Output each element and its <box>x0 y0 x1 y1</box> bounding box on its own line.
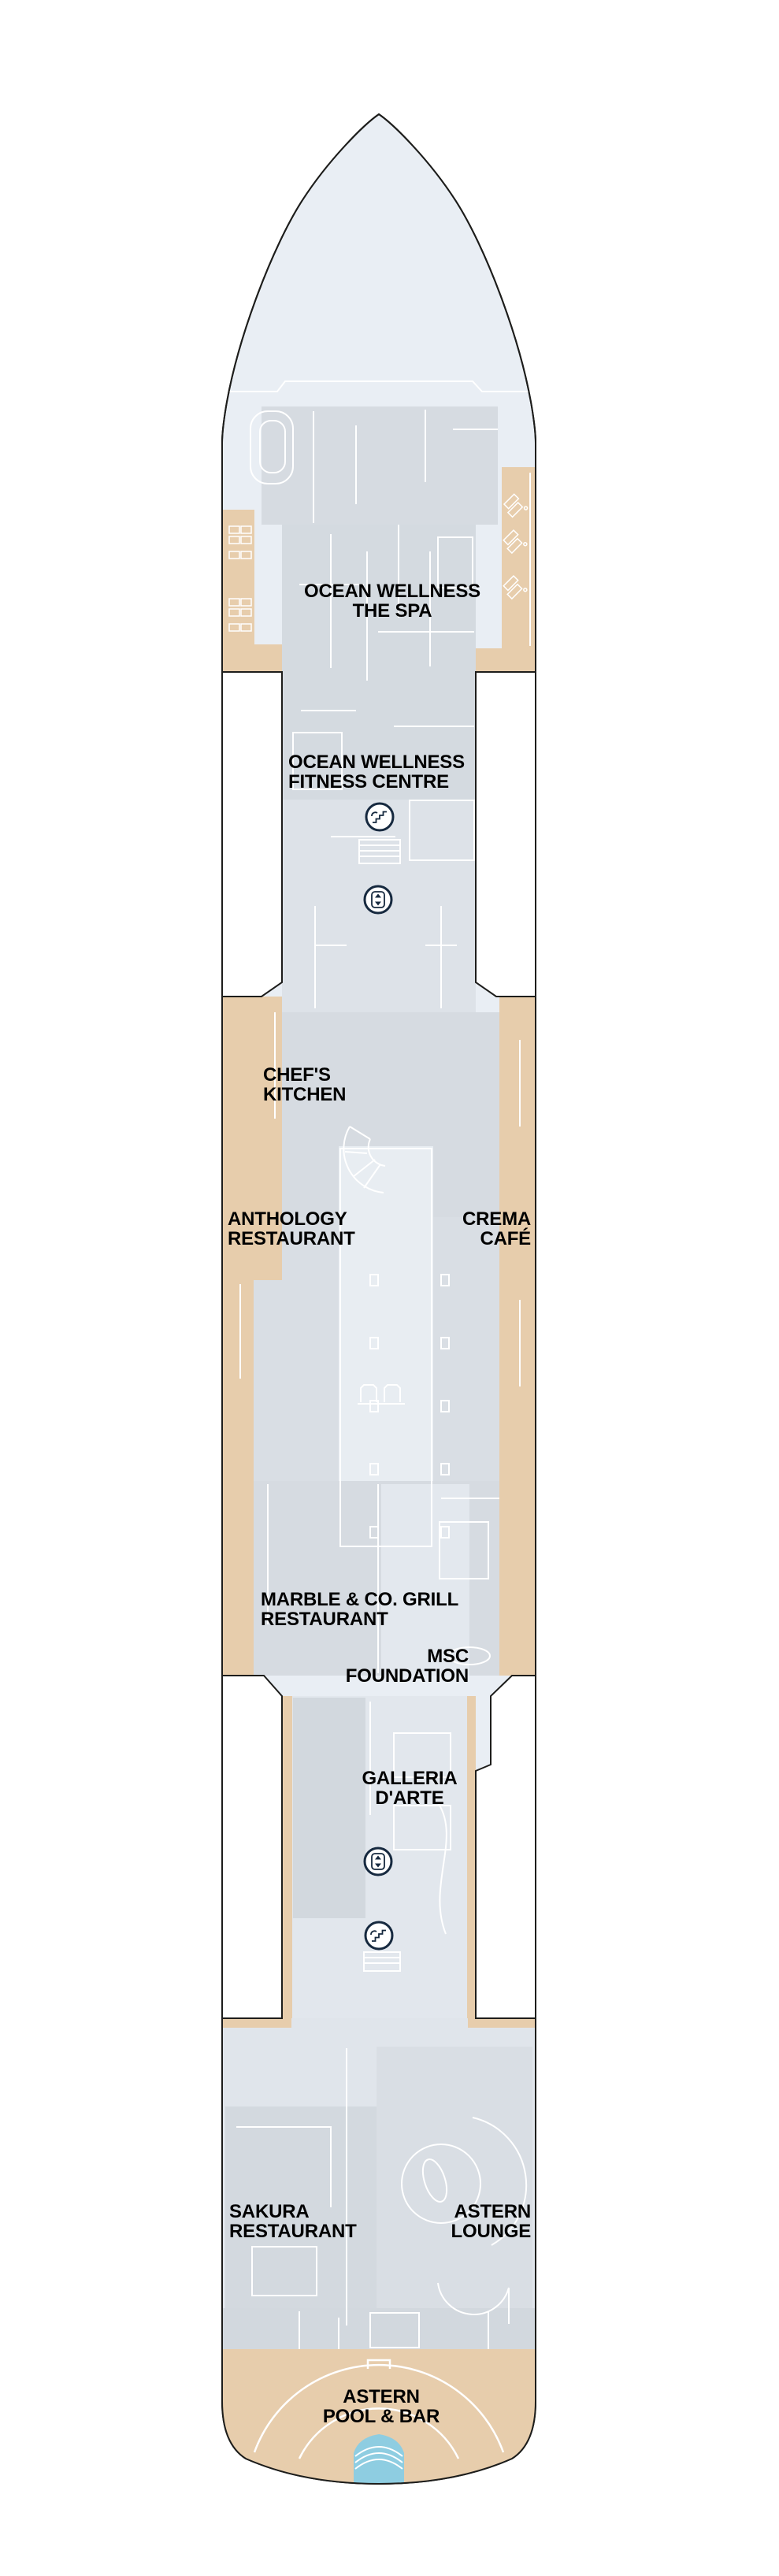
label-line: RESTAURANT <box>261 1609 458 1629</box>
label-anthology: ANTHOLOGY RESTAURANT <box>228 1209 355 1249</box>
label-line: GALLERIA <box>362 1769 457 1788</box>
label-line: MARBLE & CO. GRILL <box>261 1590 458 1609</box>
deck-cutout <box>222 672 282 997</box>
label-line: ASTERN <box>323 2387 440 2407</box>
label-chefs-kitchen: CHEF'S KITCHEN <box>263 1065 346 1104</box>
label-line: RESTAURANT <box>229 2222 357 2241</box>
label-line: KITCHEN <box>263 1085 346 1104</box>
label-astern-lounge: ASTERN LOUNGE <box>451 2202 531 2241</box>
label-line: CHEF'S <box>263 1065 346 1085</box>
stairs-icon <box>365 1922 392 1949</box>
label-galleria-darte: GALLERIA D'ARTE <box>362 1769 457 1808</box>
label-spa: OCEAN WELLNESS THE SPA <box>304 581 480 621</box>
label-line: SAKURA <box>229 2202 357 2222</box>
label-line: D'ARTE <box>362 1788 457 1808</box>
label-line: OCEAN WELLNESS <box>288 752 465 772</box>
ship-deck-plan: OCEAN WELLNESS THE SPA OCEAN WELLNESS FI… <box>0 0 779 2576</box>
elevator-icon <box>365 1848 391 1875</box>
stairs-icon <box>366 804 393 830</box>
label-line: CREMA <box>462 1209 531 1229</box>
label-line: LOUNGE <box>451 2222 531 2241</box>
label-marble-grill: MARBLE & CO. GRILL RESTAURANT <box>261 1590 458 1629</box>
label-line: ANTHOLOGY <box>228 1209 355 1229</box>
deck-cutout <box>222 1676 282 2018</box>
label-line: OCEAN WELLNESS <box>304 581 480 601</box>
label-fitness: OCEAN WELLNESS FITNESS CENTRE <box>288 752 465 792</box>
label-line: CAFÉ <box>462 1229 531 1249</box>
label-line: RESTAURANT <box>228 1229 355 1249</box>
label-line: ASTERN <box>451 2202 531 2222</box>
deck-cutout <box>476 672 536 997</box>
label-astern-pool-bar: ASTERN POOL & BAR <box>323 2387 440 2426</box>
label-sakura: SAKURA RESTAURANT <box>229 2202 357 2241</box>
label-line: FITNESS CENTRE <box>288 772 465 792</box>
pool <box>354 2434 404 2489</box>
label-line: FOUNDATION <box>346 1666 469 1686</box>
label-crema-cafe: CREMA CAFÉ <box>462 1209 531 1249</box>
label-msc-foundation: MSC FOUNDATION <box>346 1646 469 1686</box>
label-line: POOL & BAR <box>323 2407 440 2426</box>
elevator-icon <box>365 886 391 913</box>
label-line: MSC <box>346 1646 469 1666</box>
deck-plan-drawing <box>0 0 779 2576</box>
label-line: THE SPA <box>304 601 480 621</box>
